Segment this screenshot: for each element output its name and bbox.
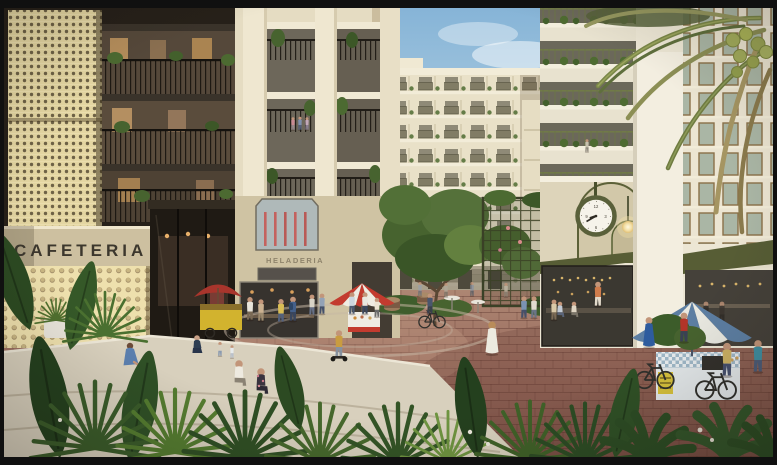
vignette — [0, 0, 777, 465]
architectural-render: CAFETERIA HELADERIA — [0, 0, 777, 465]
plaza-scene: CAFETERIA HELADERIA — [0, 0, 777, 465]
